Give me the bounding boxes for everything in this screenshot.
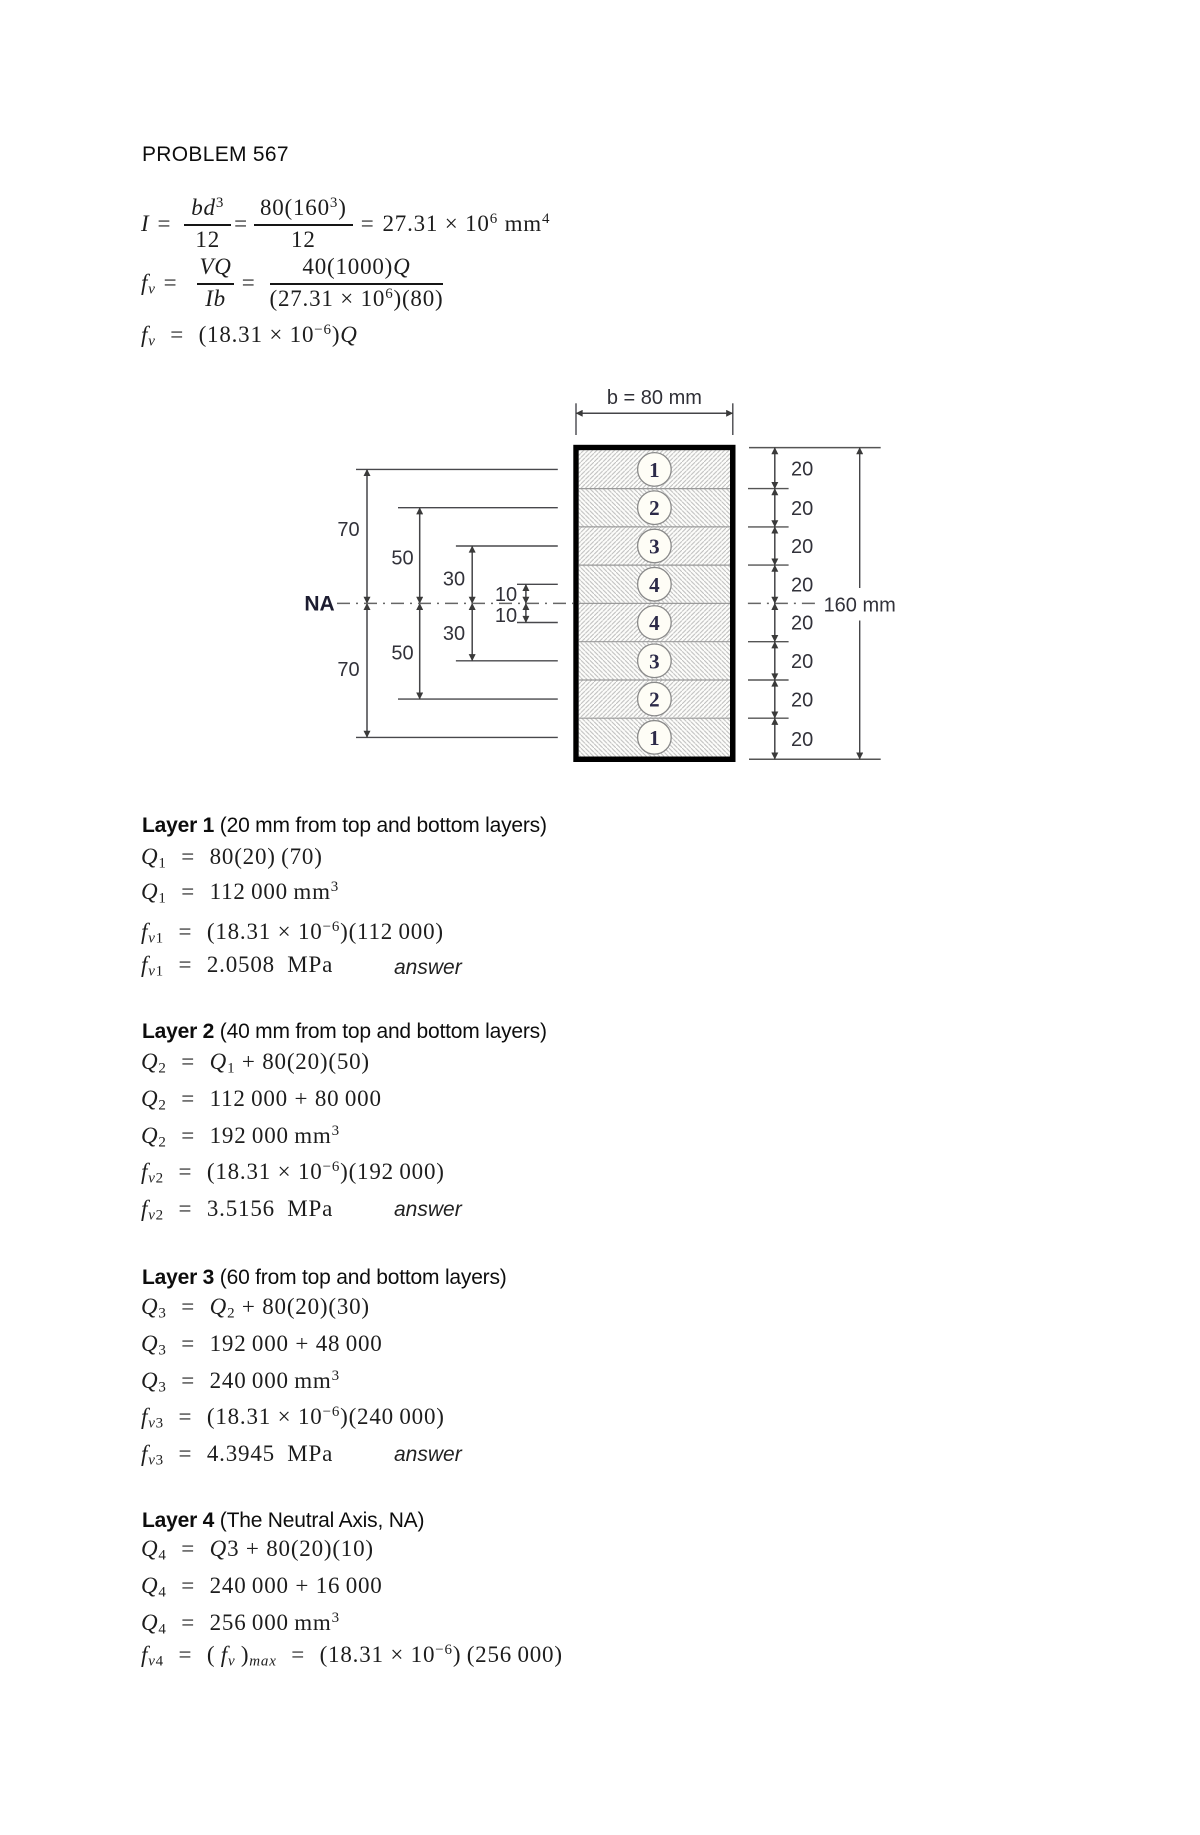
svg-text:4: 4 — [649, 573, 660, 597]
svg-text:20: 20 — [791, 729, 813, 751]
svg-text:20: 20 — [791, 689, 813, 711]
svg-text:3: 3 — [649, 534, 660, 558]
svg-text:70: 70 — [337, 659, 359, 681]
svg-text:2: 2 — [649, 496, 660, 520]
svg-text:50: 50 — [391, 548, 413, 570]
svg-text:160 mm: 160 mm — [824, 595, 896, 617]
svg-text:1: 1 — [649, 726, 660, 750]
svg-text:20: 20 — [791, 498, 813, 520]
svg-text:30: 30 — [443, 569, 465, 591]
svg-text:70: 70 — [337, 519, 359, 541]
svg-text:20: 20 — [791, 458, 813, 480]
svg-text:20: 20 — [791, 613, 813, 635]
svg-text:10: 10 — [495, 605, 517, 627]
svg-text:50: 50 — [391, 643, 413, 665]
svg-text:20: 20 — [791, 536, 813, 558]
svg-text:NA: NA — [304, 593, 334, 616]
svg-text:b = 80 mm: b = 80 mm — [607, 387, 702, 409]
svg-text:20: 20 — [791, 575, 813, 597]
svg-text:3: 3 — [649, 649, 660, 673]
svg-text:1: 1 — [649, 458, 660, 482]
svg-text:30: 30 — [443, 623, 465, 645]
svg-text:2: 2 — [649, 688, 660, 712]
svg-text:20: 20 — [791, 651, 813, 673]
svg-text:4: 4 — [649, 611, 660, 635]
